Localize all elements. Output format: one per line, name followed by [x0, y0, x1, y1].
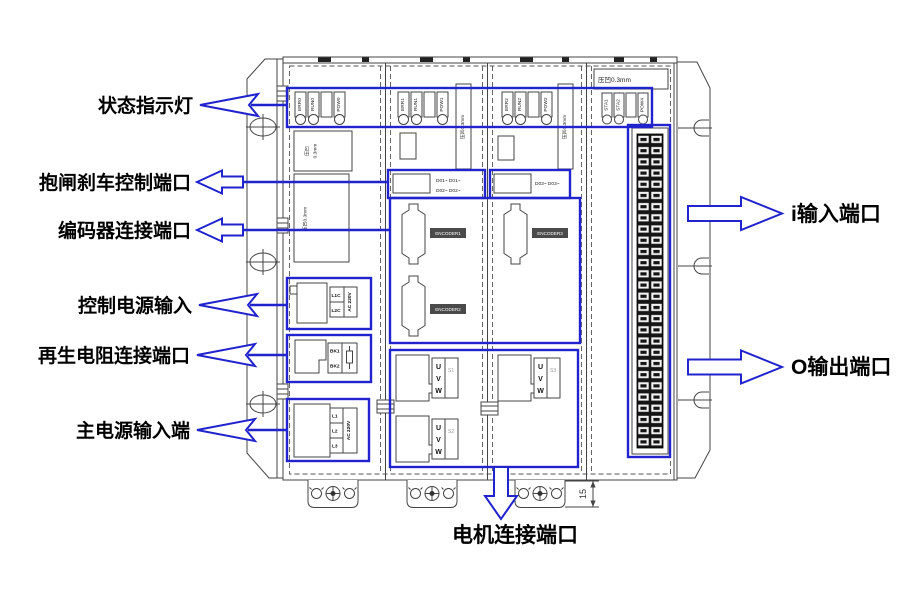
dimension-15: 15 — [565, 481, 599, 507]
callout-control-power: 控制电源输入 — [78, 294, 192, 317]
mounting-foot — [515, 480, 565, 508]
right-flange — [677, 62, 710, 478]
mounting-foot — [407, 480, 457, 508]
servo-drive-connection-diagram: ERR0 RUN0 POW0 压凹 0.3mm 压凹0.3mm L1C L2C … — [0, 0, 900, 594]
led-label: STA2 — [616, 99, 622, 111]
encoder-connector-1 — [402, 204, 425, 264]
motor-id-label: S3 — [550, 368, 556, 374]
led-label: POW4 — [640, 98, 646, 112]
control-power-arrow-icon — [199, 294, 257, 316]
uvw-label: U — [436, 425, 441, 432]
emboss-strip — [294, 174, 349, 262]
main-power-arrow-icon — [197, 419, 255, 441]
led-label: RUN2 — [517, 98, 523, 111]
status-arrow-icon — [200, 94, 258, 116]
uvw-label: V — [436, 376, 441, 383]
uvw-label: W — [435, 388, 442, 395]
emboss-box — [294, 131, 352, 171]
callout-main-power: 主电源输入端 — [76, 419, 190, 442]
uvw-label: U — [436, 364, 441, 371]
terminal-label: L3 — [332, 444, 338, 450]
motor-connector-1 — [396, 355, 435, 401]
encoder-label: ENCODER1 — [435, 231, 461, 236]
emboss-text: 压凹0.3mm — [598, 76, 631, 84]
terminal-label: AC 220V — [347, 291, 353, 311]
emboss-text: 0.3mm — [313, 144, 319, 159]
uvw-label: U — [538, 364, 543, 371]
led-label: ERR2 — [504, 98, 510, 111]
brake-label: D02~ D02~ — [436, 188, 461, 194]
uvw-label: V — [538, 376, 543, 383]
callout-brake-port: 抱闸刹车控制端口 — [39, 171, 191, 194]
motor-id-label: S1 — [448, 368, 454, 374]
callout-regen-port: 再生电阻连接端口 — [38, 344, 190, 367]
mounting-feet — [308, 480, 565, 508]
callout-i-input-port: i输入端口 — [791, 202, 881, 226]
led-label: POW2 — [543, 97, 549, 111]
terminal-label: AC 220V — [346, 420, 352, 440]
encoder-connector-3 — [504, 204, 527, 264]
brake-connector — [494, 174, 531, 193]
regen-arrow-icon — [197, 344, 255, 366]
uvw-label: V — [436, 437, 441, 444]
callout-o-output-port: O输出端口 — [791, 355, 891, 379]
led-label: RUN1 — [413, 98, 419, 111]
terminal-label: L2 — [332, 429, 338, 435]
io-terminal-pins — [637, 134, 663, 448]
encoder-arrow-icon — [197, 219, 243, 242]
callout-motor-port: 电机连接端口 — [452, 523, 578, 547]
encoder-label: ENCODER2 — [435, 307, 461, 312]
main-power-connector: L1 L2 L3 AC 220V — [294, 404, 357, 457]
mounting-foot — [308, 480, 358, 508]
brake-label: D03~ D03~ — [535, 181, 560, 187]
terminal-label: L1 — [332, 414, 338, 420]
led-label: ERR0 — [297, 98, 303, 111]
emboss-text: 压凹 — [305, 146, 311, 156]
encoder-connector-2 — [402, 276, 425, 336]
uvw-label: W — [537, 388, 544, 395]
emboss-text: 压凹0.3mm — [303, 207, 309, 231]
terminal-label: L1C — [332, 293, 342, 299]
led-label: POW0 — [336, 97, 342, 111]
callout-status-lights: 状态指示灯 — [98, 94, 193, 117]
motor-connector-2 — [396, 416, 435, 462]
led-label: POW1 — [439, 97, 445, 111]
terminal-label: L2C — [332, 308, 342, 314]
led-label: ERR1 — [400, 98, 406, 111]
dimension-label: 15 — [578, 489, 588, 499]
brake-label: D01~ D01~ — [436, 178, 461, 184]
encoder-label: ENCODER3 — [537, 231, 563, 236]
uvw-label: W — [435, 449, 442, 456]
terminal-label: BK1 — [330, 349, 340, 355]
motor-connector-3 — [498, 355, 537, 401]
terminal-label: BK2 — [330, 364, 340, 370]
led-label: RUN0 — [310, 98, 316, 111]
diagram-canvas: ERR0 RUN0 POW0 压凹 0.3mm 压凹0.3mm L1C L2C … — [0, 0, 900, 594]
led-label: STA1 — [604, 99, 610, 111]
callout-encoder-port: 编码器连接端口 — [58, 219, 191, 242]
control-power-connector: L1C L2C AC 220V — [290, 283, 357, 323]
motor-id-label: S2 — [448, 429, 454, 435]
brake-connector — [393, 174, 430, 193]
brake-arrow-icon — [197, 171, 243, 194]
